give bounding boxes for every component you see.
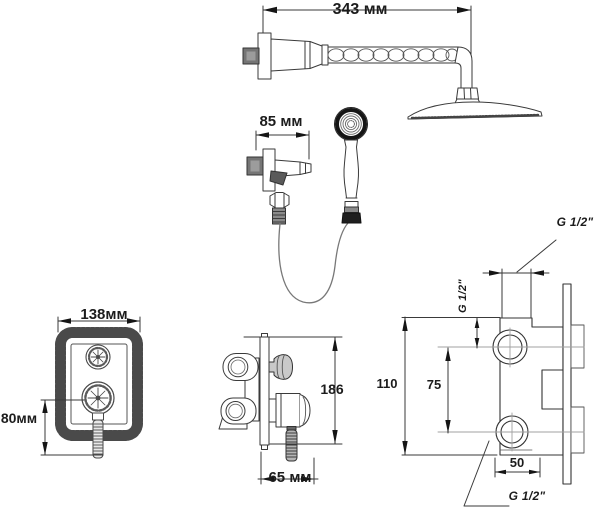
dim-label-mixer-depth: 65 мм xyxy=(263,470,317,486)
mixer-valve-body xyxy=(276,394,300,428)
thread-label-bottom: G 1/2" xyxy=(502,490,552,503)
section-wall-plate xyxy=(563,284,571,484)
thread-label-side: G 1/2" xyxy=(458,273,472,319)
rain-shower-head xyxy=(408,102,542,119)
hand-shower-connector xyxy=(342,213,361,223)
mixer-lever-handle xyxy=(286,430,297,461)
thread-label-top: G 1/2" xyxy=(551,216,599,229)
hand-shower-holder xyxy=(247,149,311,191)
mixer-side-view xyxy=(219,334,310,462)
decorative-plate xyxy=(57,329,141,458)
hand-shower-handle xyxy=(344,140,359,198)
arm-braid-pattern xyxy=(328,49,458,61)
dim-label-port-width: 50 xyxy=(503,456,531,470)
arm-wall-flange xyxy=(258,33,271,79)
mixer-wall-plate xyxy=(260,337,269,445)
plate-lever-handle xyxy=(93,413,104,458)
head-connector-nut xyxy=(457,88,479,99)
dim-label-holder-width: 85 мм xyxy=(251,114,311,130)
technical-drawing-canvas xyxy=(0,0,600,519)
dim-label-arm-length: 343 мм xyxy=(322,2,398,19)
shower-hose xyxy=(279,223,348,303)
dim-label-port-spacing: 75 xyxy=(420,378,448,392)
hose-wall-outlet xyxy=(270,193,289,225)
holder-wall-flange xyxy=(263,149,275,191)
dim-label-plate-width: 138мм xyxy=(70,307,138,323)
dim-label-plate-height: 80мм xyxy=(0,411,39,426)
plate-top-knob xyxy=(86,345,110,369)
mixer-knob-profile xyxy=(269,355,293,380)
leader-thread-top xyxy=(517,240,556,272)
dim-label-mixer-height: 186 xyxy=(315,382,349,397)
plate-bottom-knob xyxy=(82,382,114,414)
dim-label-body-height: 110 xyxy=(372,377,402,391)
hand-shower xyxy=(335,108,368,224)
technical-drawing-page: 343 мм 85 мм 138мм 80мм 186 65 мм 110 75… xyxy=(0,0,600,519)
shower-arm xyxy=(243,33,481,110)
